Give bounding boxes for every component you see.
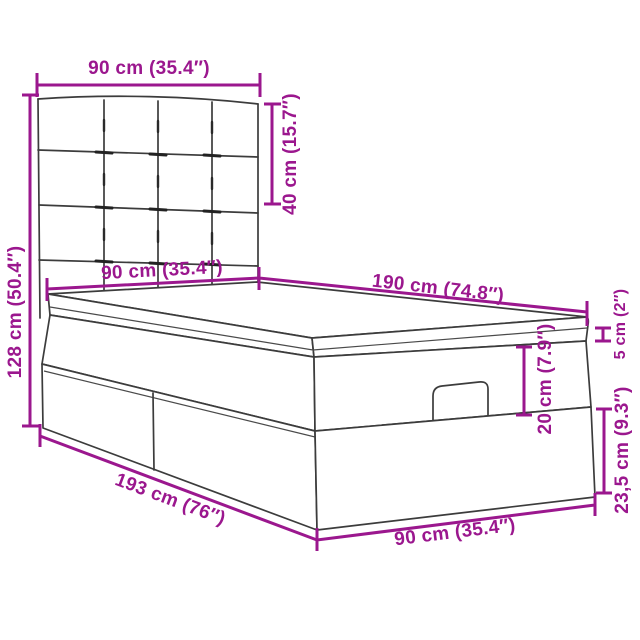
dim-line-base-height [596, 409, 612, 493]
dim-label-topper-thickness: 5 cm (2″) [612, 289, 630, 360]
dim-label-mattress-depth: 20 cm (7.9″) [535, 324, 557, 435]
dimension-diagram: 90 cm (35.4″) 40 cm (15.7″) 128 cm (50.4… [0, 0, 640, 640]
dim-line-topper [595, 328, 611, 341]
dim-label-headboard-width: 90 cm (35.4″) [88, 58, 210, 80]
dim-label-headboard-height: 40 cm (15.7″) [280, 93, 302, 215]
dim-label-base-height: 23,5 cm (9.3″) [612, 386, 634, 513]
base-panel-divider [153, 393, 154, 470]
bed-line-art [0, 0, 640, 640]
dim-line-headboard-height [264, 104, 281, 204]
dim-label-overall-height: 128 cm (50.4″) [5, 246, 27, 379]
